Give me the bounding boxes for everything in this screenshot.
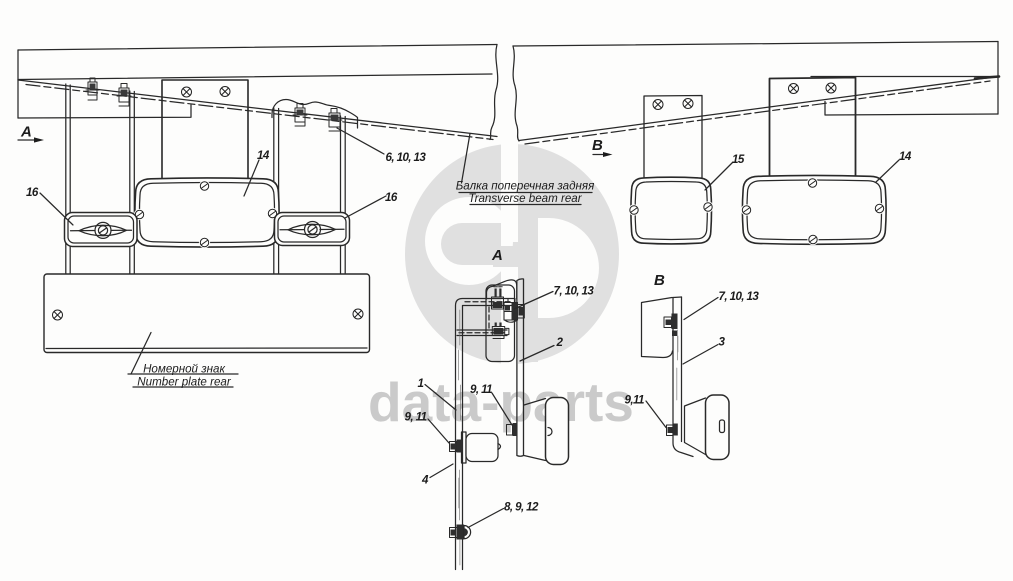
svg-text:Transverse beam rear: Transverse beam rear [468, 192, 582, 205]
svg-text:7, 10, 13: 7, 10, 13 [554, 285, 595, 298]
svg-text:А: А [491, 247, 503, 264]
svg-text:Номерной знак: Номерной знак [143, 363, 225, 376]
svg-text:7, 10, 13: 7, 10, 13 [719, 290, 760, 303]
svg-text:3: 3 [719, 336, 726, 349]
svg-text:16: 16 [26, 186, 39, 199]
svg-text:Балка поперечная задняя: Балка поперечная задняя [456, 180, 595, 193]
svg-text:9, 11: 9, 11 [405, 411, 427, 424]
svg-text:15: 15 [732, 153, 745, 166]
svg-text:Number plate rear: Number plate rear [137, 376, 232, 389]
svg-text:4: 4 [421, 474, 429, 487]
svg-text:14: 14 [257, 149, 270, 162]
svg-text:9,11: 9,11 [625, 394, 644, 407]
svg-text:8, 9, 12: 8, 9, 12 [504, 501, 539, 514]
svg-text:data-parts: data-parts [368, 371, 634, 433]
svg-text:1: 1 [418, 377, 424, 390]
svg-text:9, 11: 9, 11 [470, 383, 492, 396]
svg-text:B: B [592, 137, 603, 154]
svg-text:16: 16 [385, 191, 398, 204]
svg-text:2: 2 [556, 336, 564, 349]
svg-text:6, 10, 13: 6, 10, 13 [386, 151, 427, 164]
svg-text:A: A [20, 124, 32, 141]
svg-text:В: В [654, 272, 665, 289]
svg-text:14: 14 [899, 150, 912, 163]
